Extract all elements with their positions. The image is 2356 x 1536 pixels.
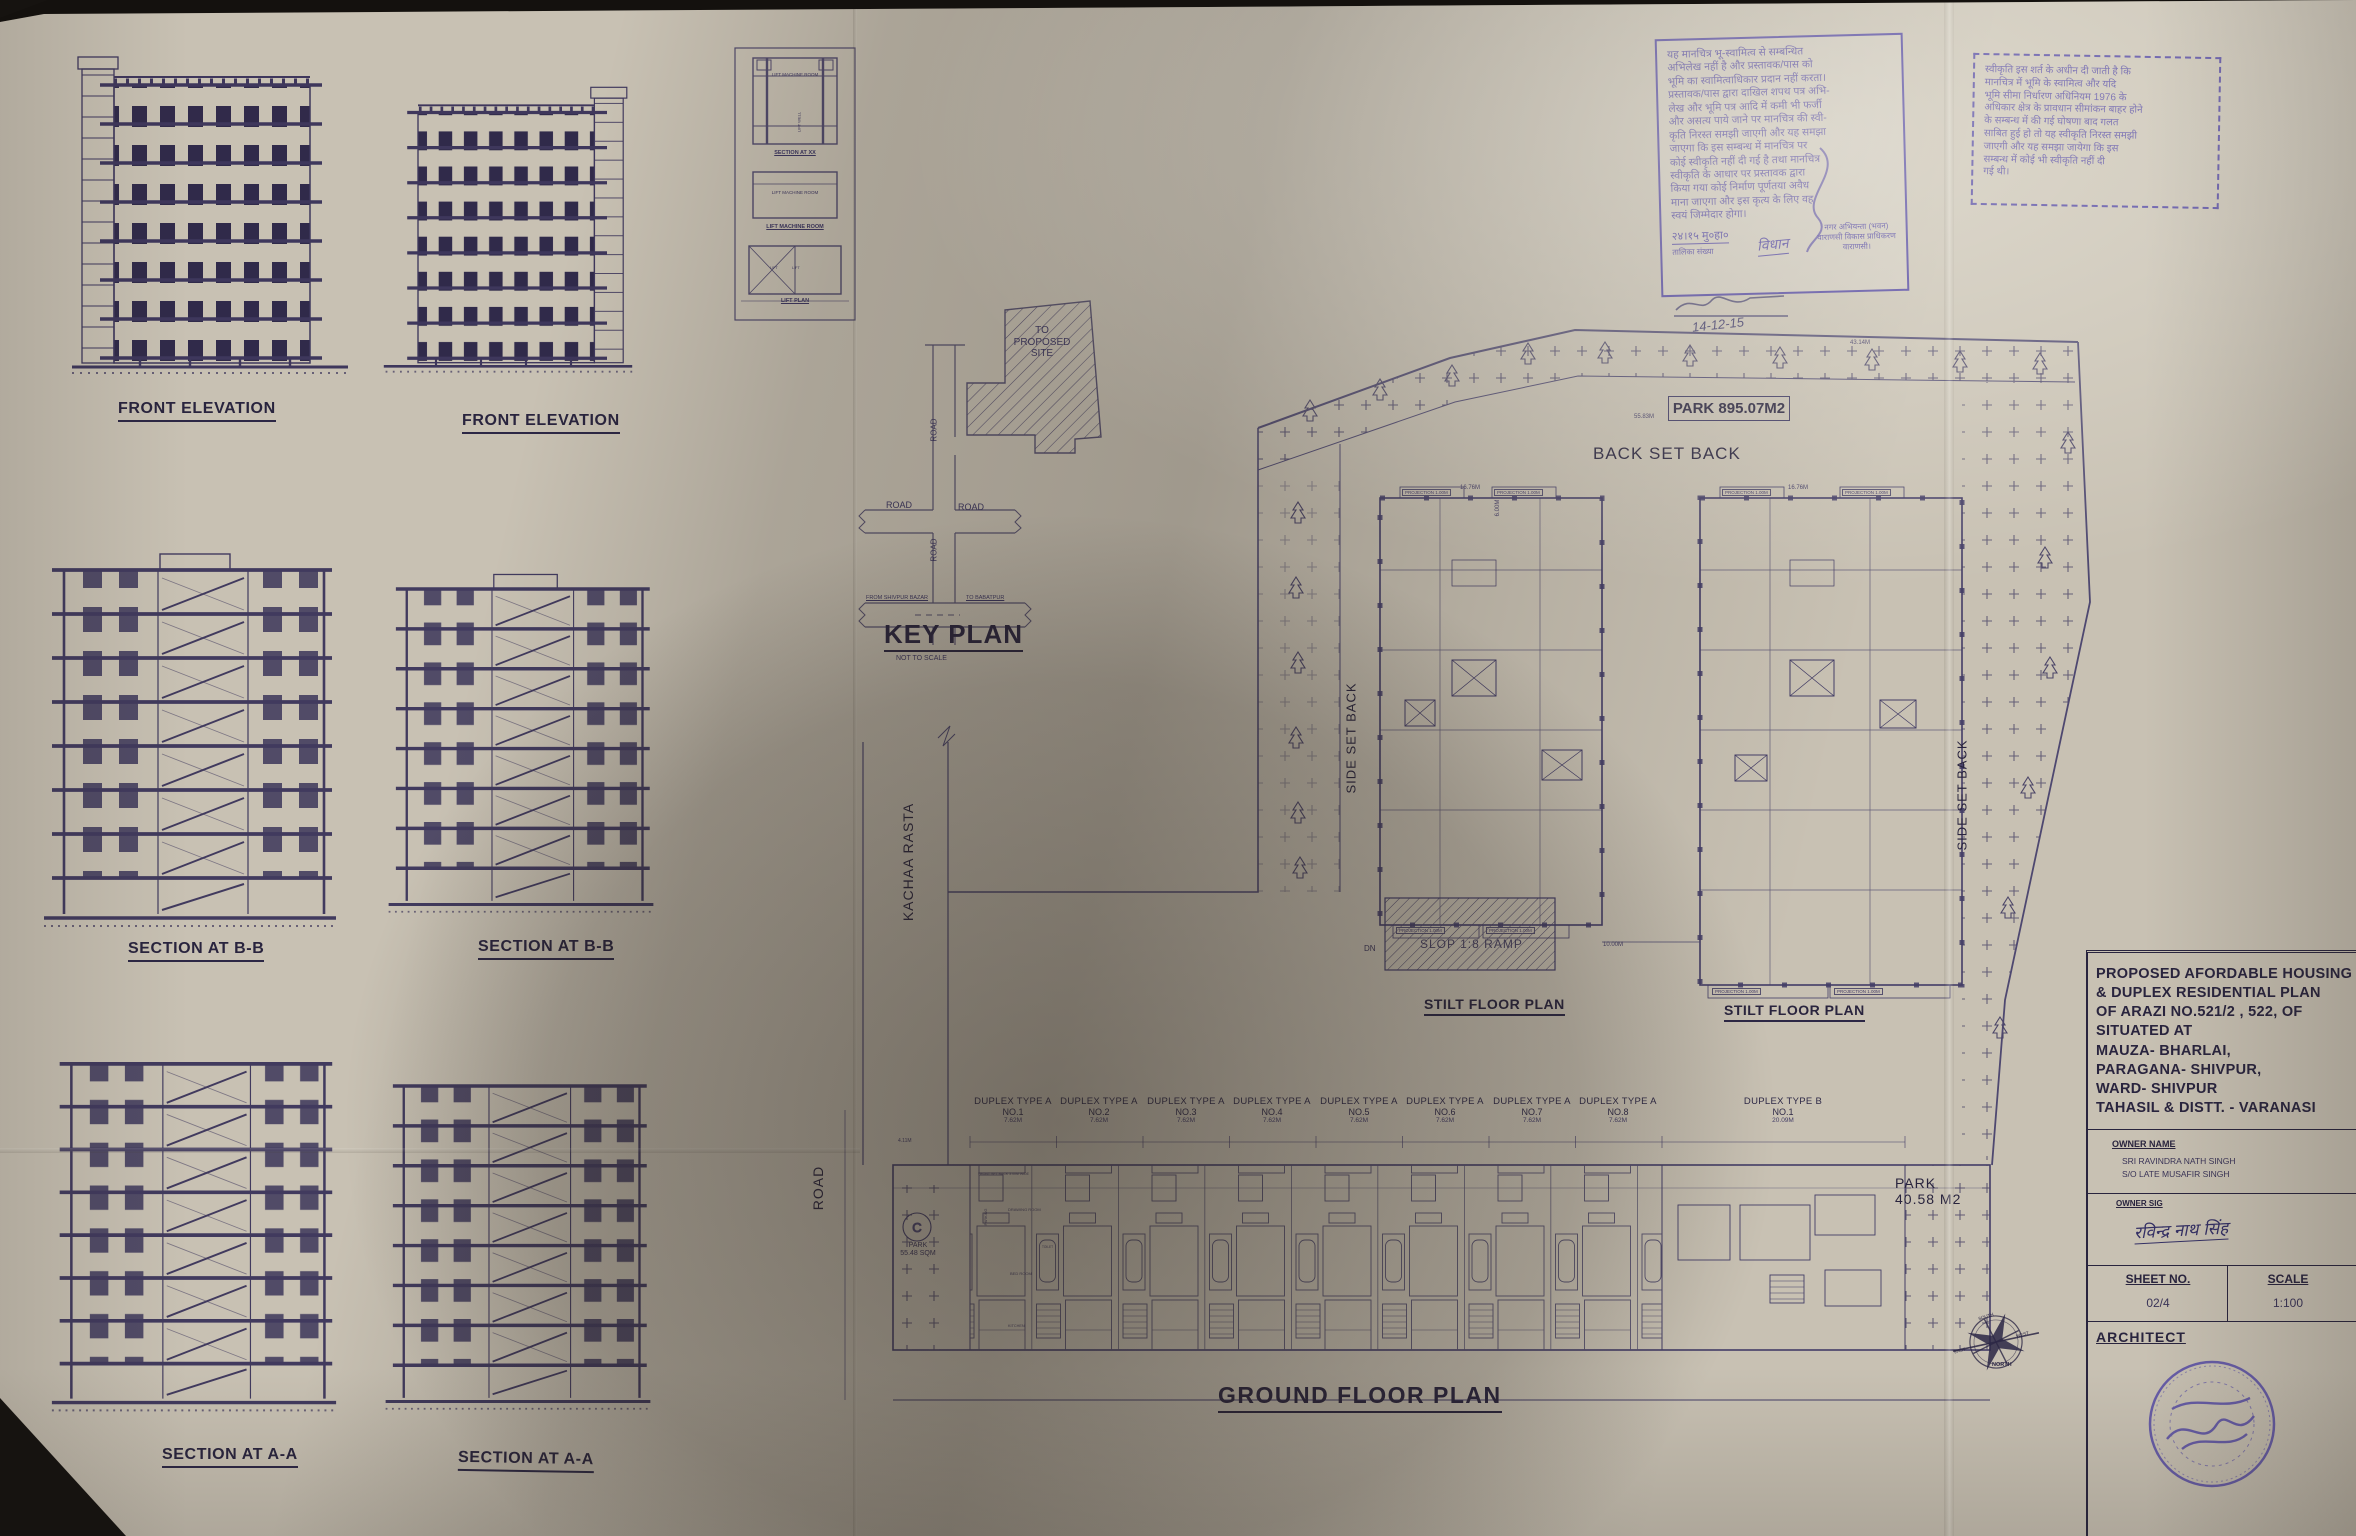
lift-plan-caption: LIFT PLAN [760,298,830,304]
approval-stamp-2: स्वीकृति इस शर्त के अधीन दी जाती है कि म… [1971,53,2222,209]
lift-section-caption: SECTION AT XX [751,150,839,156]
side-setback-right-label: SIDE SET BACK [1956,739,1971,850]
lift-well-label: LIFT WELL [798,112,803,132]
owner-name: SRI RAVINDRA NATH SINGH S/O LATE MUSAFIR… [2122,1155,2236,1181]
owner-name-label: OWNER NAME [2112,1139,2176,1149]
section-aa-label-1: SECTION AT A-A [162,1446,298,1468]
ramp-hatch [1385,898,1555,970]
project-title: PROPOSED AFORDABLE HOUSING & DUPLEX RESI… [2096,965,2352,1118]
dn-label: DN [1364,944,1376,953]
stamp1-ink-flourish [1790,140,1850,260]
section-aa-drawing-1 [48,1042,340,1440]
duplex-dim: 20.09M [1731,1117,1835,1124]
side-setback-left-label: SIDE SET BACK [1345,682,1360,793]
section-bb-drawing-1 [40,552,340,952]
dim-block2-top: 16.76M [1788,485,1808,491]
blueprint-sheet: FRONT ELEVATION FRONT ELEVATION [0,0,2356,1536]
stamp2-body-text: स्वीकृति इस शर्त के अधीन दी जाती है कि म… [1983,64,2209,183]
stilt-block-1 [1380,487,1602,938]
stilt-block-2 [1700,487,1962,998]
front-elevation-drawing-2 [382,68,634,418]
front-elevation-drawing-1 [70,55,350,405]
section-aa-label-2: SECTION AT A-A [458,1449,594,1474]
projection-label-8: PROJECTION 1.00M [1834,988,1883,995]
lift-detail-drawing [733,46,857,322]
ground-floor-plan-title: GROUND FLOOR PLAN [1218,1382,1502,1413]
duplex-label-9: DUPLEX TYPE B NO.1 20.09M [1731,1096,1835,1124]
dim-top: 43.14M [1850,340,1870,346]
projection-label-6: PROJECTION 1.00M [1486,927,1535,934]
lift-cell-label-1: LIFT [770,266,778,270]
section-bb-label-1: SECTION AT B-B [128,940,264,962]
dim-side: 6.00M [1495,500,1501,517]
park-left-label: PARK 55.48 SQM [894,1242,942,1258]
front-elevation-label-2: FRONT ELEVATION [462,412,620,434]
signature-scribble [1672,292,1792,318]
lift-machine-room-label-mid: LIFT MACHINE ROOM [767,190,823,195]
dim-park-edge: 55.83M [1634,414,1654,420]
architect-label: ARCHITECT [2096,1329,2186,1345]
kachaa-rasta-label: KACHAA RASTA [900,803,916,921]
site-plan-drawing: C [840,230,2090,1435]
stamp1-body-text: यह मानचित्र भू-स्वामित्व से सम्बन्धित अभ… [1667,43,1895,223]
owner-sig-label: OWNER SIG [2116,1199,2163,1208]
owner-signature: रविन्द्र नाथ सिंह [2134,1219,2229,1244]
room-toilet-label: TOILET [1042,1246,1053,1250]
section-aa-drawing-2 [382,1052,654,1450]
duplex-no: NO.1 [1731,1107,1835,1117]
room-kitchen-label: KITCHEN [1008,1324,1025,1328]
ramp-label: SLOP 1:8 RAMP [1420,938,1523,952]
lift-machine-room-caption: LIFT MACHINE ROOM [747,224,843,230]
dim-park-small: 4.11M [898,1138,912,1144]
ground-floor-strip: C [845,1110,1990,1400]
back-setback-label: BACK SET BACK [1593,444,1741,464]
park-top-label: PARK 895.07M2 [1668,396,1790,421]
stilt-floor-plan-label-2: STILT FLOOR PLAN [1724,1002,1865,1022]
front-setback-note: FRONT SET BACK 3.00M WIDE [978,1172,1029,1176]
stilt-floor-plan-label-1: STILT FLOOR PLAN [1424,996,1565,1016]
compass-rose-icon [1952,1296,2044,1388]
section-bb-label-2: SECTION AT B-B [478,938,614,960]
room-drawing-label: DRAWING ROOM [1008,1208,1041,1213]
stamp1-table-no: तालिका संख्या [1672,245,1729,257]
sheet-no-value: 02/4 [2112,1297,2204,1311]
room-parking-label: PARKING [984,1209,988,1226]
front-elevation-label-1: FRONT ELEVATION [118,400,276,422]
photographed-blueprint: { "elevations": { "label": "FRONT ELEVAT… [0,0,2356,1536]
room-bed-label: BED ROOM [1010,1272,1032,1277]
sheet-no-label: SHEET NO. [2112,1273,2204,1287]
projection-label-2: PROJECTION 1.00M [1494,489,1543,496]
projection-label-5: PROJECTION 1.00M [1396,927,1445,934]
projection-label-3: PROJECTION 1.00M [1722,489,1771,496]
lift-cell-label-2: LIFT [792,266,800,270]
section-bb-drawing-2 [385,558,657,950]
duplex-dim: 7.62M [1566,1117,1670,1124]
approval-stamp-1: यह मानचित्र भू-स्वामित्व से सम्बन्धित अभ… [1655,33,1910,297]
stamp1-date: २४।१५ मु०हा० [1672,227,1729,244]
scale-label: SCALE [2248,1273,2328,1287]
pole-c-label: C [912,1220,921,1235]
duplex-no: NO.8 [1566,1107,1670,1117]
architect-round-stamp [2142,1354,2282,1494]
compass-north-label: NORTH [1992,1362,2012,1368]
duplex-type: DUPLEX TYPE A [1566,1096,1670,1107]
dim-block-gap: 10.00M [1603,942,1623,948]
dim-block1-top: 16.76M [1460,485,1480,491]
stamp1-handwritten-sig: विधान [1757,234,1790,257]
road-label-site: ROAD [810,1166,826,1210]
scale-value: 1:100 [2248,1297,2328,1311]
park-right-label: PARK 40.58 M2 [1895,1175,1961,1207]
duplex-type: DUPLEX TYPE B [1731,1096,1835,1107]
projection-label-1: PROJECTION 1.00M [1402,489,1451,496]
projection-label-7: PROJECTION 1.00M [1712,988,1761,995]
duplex-label-8: DUPLEX TYPE A NO.8 7.62M [1566,1096,1670,1124]
projection-label-4: PROJECTION 1.00M [1842,489,1891,496]
lift-machine-room-label-top: LIFT MACHINE ROOM [767,72,823,77]
